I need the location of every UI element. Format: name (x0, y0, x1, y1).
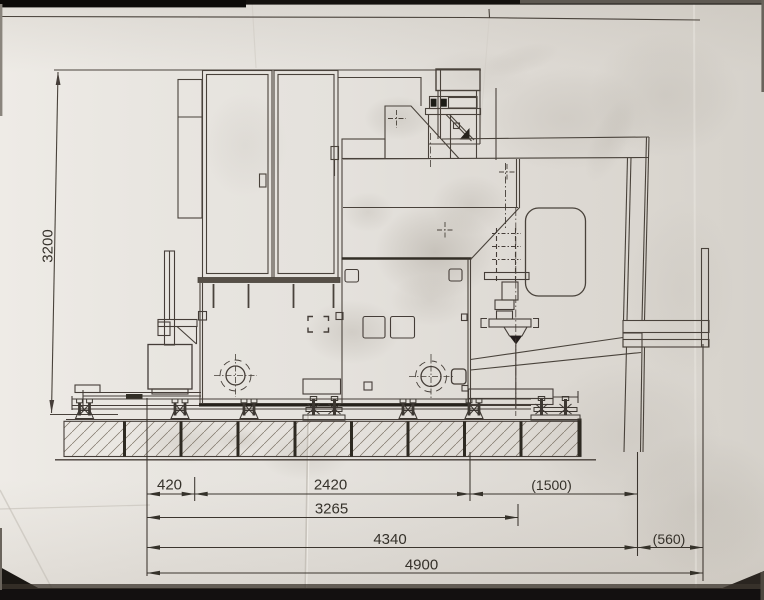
svg-text:4900: 4900 (405, 557, 438, 574)
svg-text:4340: 4340 (373, 531, 406, 548)
svg-text:2420: 2420 (314, 477, 347, 494)
svg-text:3265: 3265 (315, 501, 348, 518)
svg-text:(1500): (1500) (531, 477, 571, 493)
svg-text:420: 420 (157, 477, 182, 494)
svg-text:3200: 3200 (40, 229, 57, 262)
svg-text:(560): (560) (653, 531, 686, 547)
